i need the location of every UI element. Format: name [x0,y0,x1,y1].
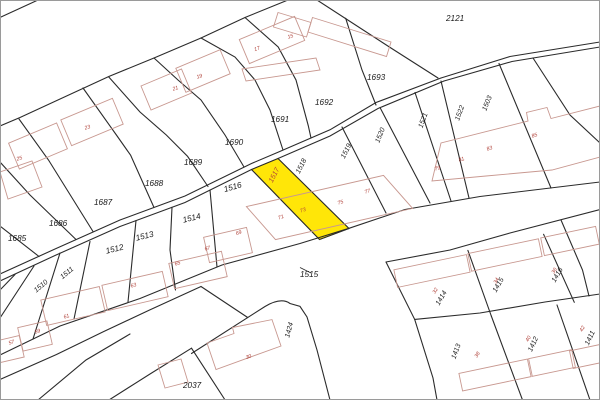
svg-text:1687: 1687 [94,198,113,207]
svg-text:1692: 1692 [315,98,334,107]
svg-text:1691: 1691 [271,115,289,124]
svg-text:1688: 1688 [145,179,164,188]
svg-text:1685: 1685 [8,234,27,243]
svg-text:2121: 2121 [445,14,464,23]
svg-text:1693: 1693 [367,73,386,82]
svg-text:1686: 1686 [49,219,68,228]
svg-text:1515: 1515 [300,270,319,279]
svg-text:1690: 1690 [225,138,244,147]
svg-text:1689: 1689 [184,158,203,167]
svg-text:2037: 2037 [182,381,202,390]
